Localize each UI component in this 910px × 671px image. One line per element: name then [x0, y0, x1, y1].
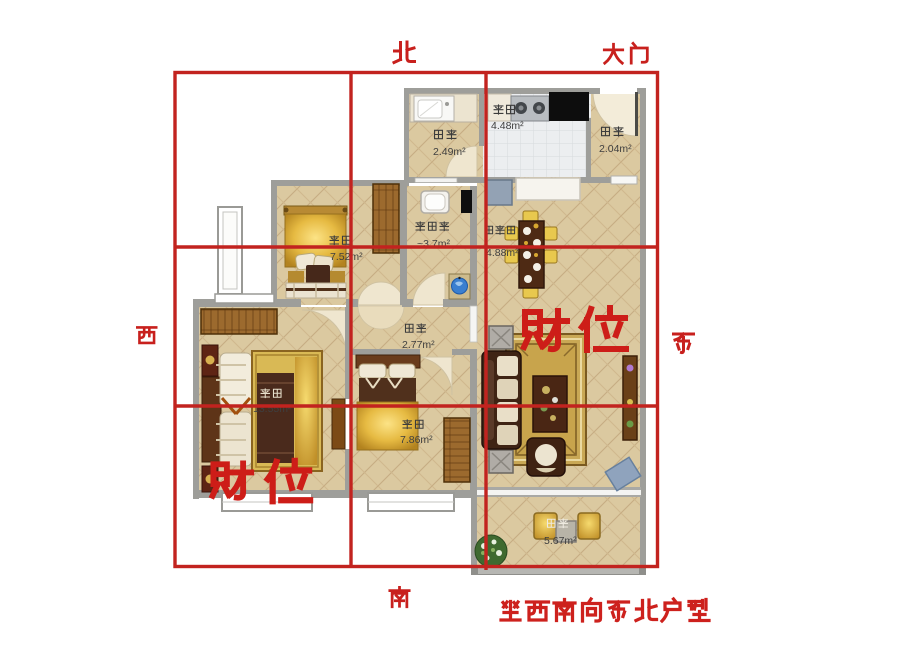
svg-text:2.04m²: 2.04m² — [599, 143, 632, 155]
svg-text:7.86m²: 7.86m² — [400, 434, 433, 446]
svg-text:5.67m²: 5.67m² — [544, 535, 577, 547]
svg-text:4.88m²: 4.88m² — [486, 247, 519, 259]
svg-text:2.77m²: 2.77m² — [402, 339, 435, 351]
svg-text:4.48m²: 4.48m² — [491, 120, 524, 132]
svg-text:2.49m²: 2.49m² — [433, 146, 466, 158]
svg-text:7.52m²: 7.52m² — [330, 251, 363, 263]
